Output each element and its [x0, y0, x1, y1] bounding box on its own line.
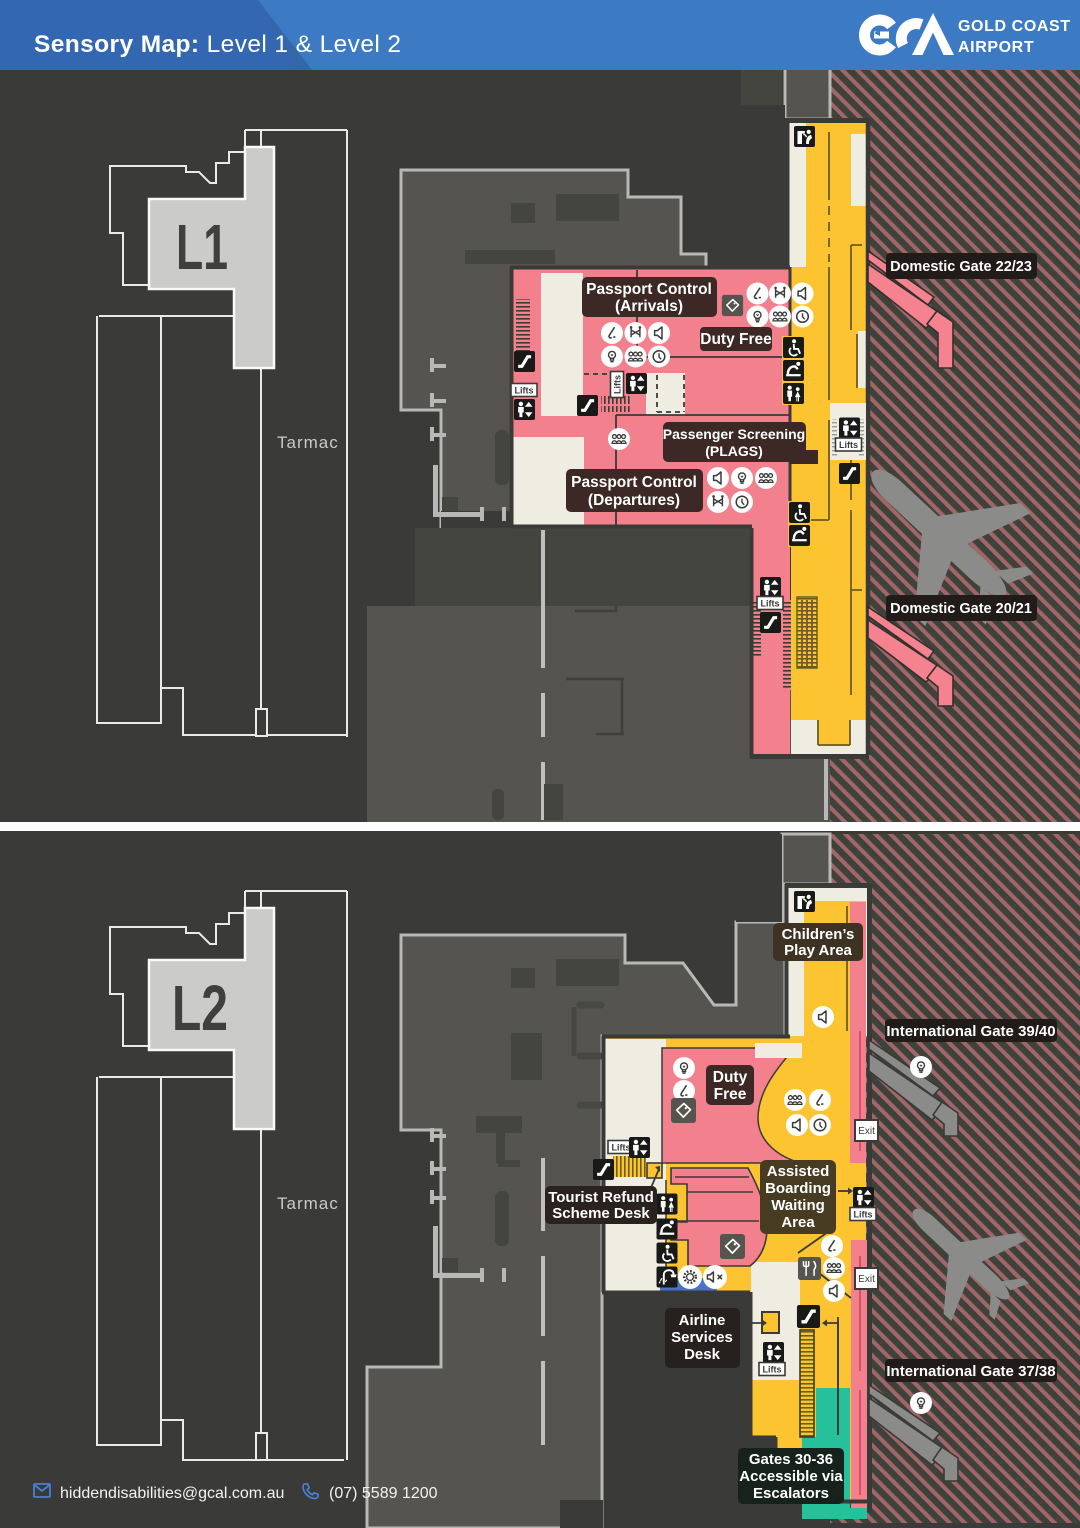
- svg-text:Airline: Airline: [679, 1312, 726, 1329]
- svg-text:Accessible via: Accessible via: [739, 1468, 843, 1485]
- svg-text:Tourist Refund: Tourist Refund: [548, 1189, 654, 1206]
- svg-text:hiddendisabilities@gcal.com.au: hiddendisabilities@gcal.com.au: [60, 1485, 284, 1502]
- svg-text:GOLD COAST: GOLD COAST: [958, 18, 1071, 35]
- svg-text:Assisted: Assisted: [767, 1163, 830, 1180]
- svg-text:AIRPORT: AIRPORT: [958, 39, 1034, 56]
- svg-text:Boarding: Boarding: [765, 1180, 831, 1197]
- svg-text:Passport Control: Passport Control: [571, 474, 697, 491]
- svg-text:Area: Area: [781, 1214, 815, 1231]
- svg-text:Gates 30-36: Gates 30-36: [749, 1451, 833, 1468]
- svg-text:Domestic Gate 22/23: Domestic Gate 22/23: [890, 259, 1032, 275]
- svg-text:Passenger Screening: Passenger Screening: [663, 426, 805, 442]
- svg-text:Domestic Gate 20/21: Domestic Gate 20/21: [890, 601, 1032, 617]
- svg-text:(PLAGS): (PLAGS): [705, 443, 763, 459]
- svg-text:Desk: Desk: [684, 1346, 721, 1363]
- svg-text:Services: Services: [671, 1329, 733, 1346]
- svg-text:Passport Control: Passport Control: [586, 281, 712, 298]
- svg-text:Lifts: Lifts: [612, 375, 622, 394]
- svg-text:L2: L2: [172, 972, 228, 1044]
- svg-text:Sensory Map: Level 1 & Level 2: Sensory Map: Level 1 & Level 2: [34, 31, 401, 58]
- svg-text:International Gate 37/38: International Gate 37/38: [886, 1363, 1055, 1380]
- svg-text:Tarmac: Tarmac: [277, 433, 339, 452]
- svg-text:Waiting: Waiting: [771, 1197, 825, 1214]
- svg-text:Scheme Desk: Scheme Desk: [552, 1205, 650, 1222]
- svg-text:Duty Free: Duty Free: [700, 331, 772, 348]
- svg-text:Tarmac: Tarmac: [277, 1194, 339, 1213]
- svg-text:Free: Free: [714, 1086, 747, 1103]
- svg-text:Children’s: Children’s: [782, 926, 855, 943]
- svg-text:Duty: Duty: [713, 1069, 748, 1086]
- svg-text:Play Area: Play Area: [784, 942, 852, 959]
- svg-text:(07) 5589 1200: (07) 5589 1200: [329, 1485, 438, 1502]
- svg-text:International Gate 39/40: International Gate 39/40: [886, 1023, 1055, 1040]
- svg-text:Escalators: Escalators: [753, 1485, 829, 1502]
- svg-text:(Arrivals): (Arrivals): [615, 298, 683, 315]
- svg-text:(Departures): (Departures): [588, 492, 680, 509]
- svg-text:L1: L1: [176, 211, 228, 283]
